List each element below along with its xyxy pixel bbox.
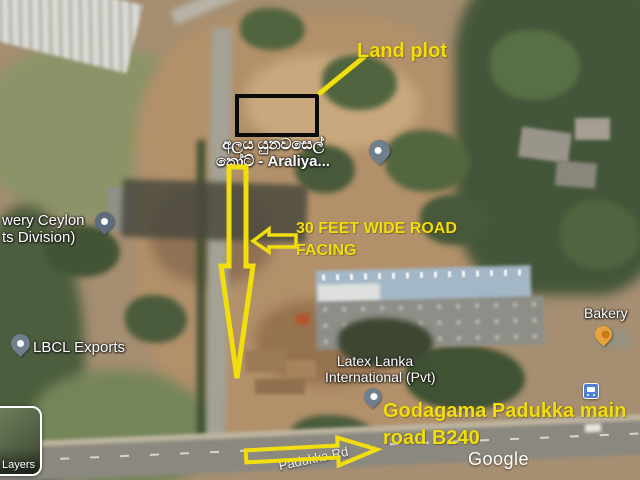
building-right2 bbox=[555, 160, 597, 188]
poi-label-brewery[interactable]: wery Ceylon ts Division) bbox=[2, 212, 85, 247]
layers-label: Layers bbox=[2, 459, 35, 471]
poi-brewery-line2: ts Division) bbox=[2, 229, 85, 246]
tree-clump-mid1 bbox=[322, 55, 397, 110]
vehicle-white bbox=[585, 424, 601, 433]
tree-clump-left2 bbox=[125, 295, 187, 343]
poi-label-latex[interactable]: Latex Lanka International (Pvt) bbox=[325, 353, 425, 385]
building-right3 bbox=[575, 118, 610, 140]
layers-control[interactable]: Layers bbox=[0, 406, 42, 476]
building-small2 bbox=[286, 360, 316, 378]
land-plot-label: Land plot bbox=[357, 40, 447, 63]
poi-araliya-line1: අලය යුනවසෙල් bbox=[216, 136, 330, 153]
poi-latex-line2: International (Pvt) bbox=[325, 369, 425, 385]
road-facing-line1: 30 FEET WIDE ROAD bbox=[296, 220, 457, 238]
main-road-line2: road B240 bbox=[383, 427, 480, 450]
poi-label-lbcl[interactable]: LBCL Exports bbox=[33, 339, 125, 356]
tree-clump-mid5 bbox=[240, 8, 305, 50]
building-small1 bbox=[245, 349, 288, 372]
bus-stop-icon[interactable] bbox=[583, 383, 599, 399]
google-watermark: Google bbox=[468, 449, 529, 470]
poi-brewery-line1: wery Ceylon bbox=[2, 212, 85, 229]
poi-label-araliya[interactable]: අලය යුනවසෙල් කෝට් - Araliya... bbox=[216, 136, 330, 171]
main-road-line1: Godagama Padukka main bbox=[383, 400, 626, 423]
poi-latex-line1: Latex Lanka bbox=[325, 353, 425, 369]
tree-clump-right2 bbox=[560, 200, 640, 270]
building-red-roof bbox=[296, 314, 309, 325]
tree-clump-right1 bbox=[490, 30, 580, 100]
building-dark-leftcenter bbox=[121, 179, 308, 243]
poi-lbcl-text: LBCL Exports bbox=[33, 339, 125, 356]
poi-bakery-text: Bakery bbox=[584, 305, 628, 321]
poi-araliya-line2: කෝට් - Araliya... bbox=[216, 153, 330, 170]
satellite-map-view[interactable]: wery Ceylon ts Division) අලය යුනවසෙල් කෝ… bbox=[0, 0, 640, 480]
building-small3 bbox=[255, 379, 305, 394]
tree-clump-mid3 bbox=[385, 130, 470, 192]
road-facing-line2: FACING bbox=[296, 242, 356, 260]
poi-label-bakery[interactable]: Bakery bbox=[584, 305, 628, 321]
